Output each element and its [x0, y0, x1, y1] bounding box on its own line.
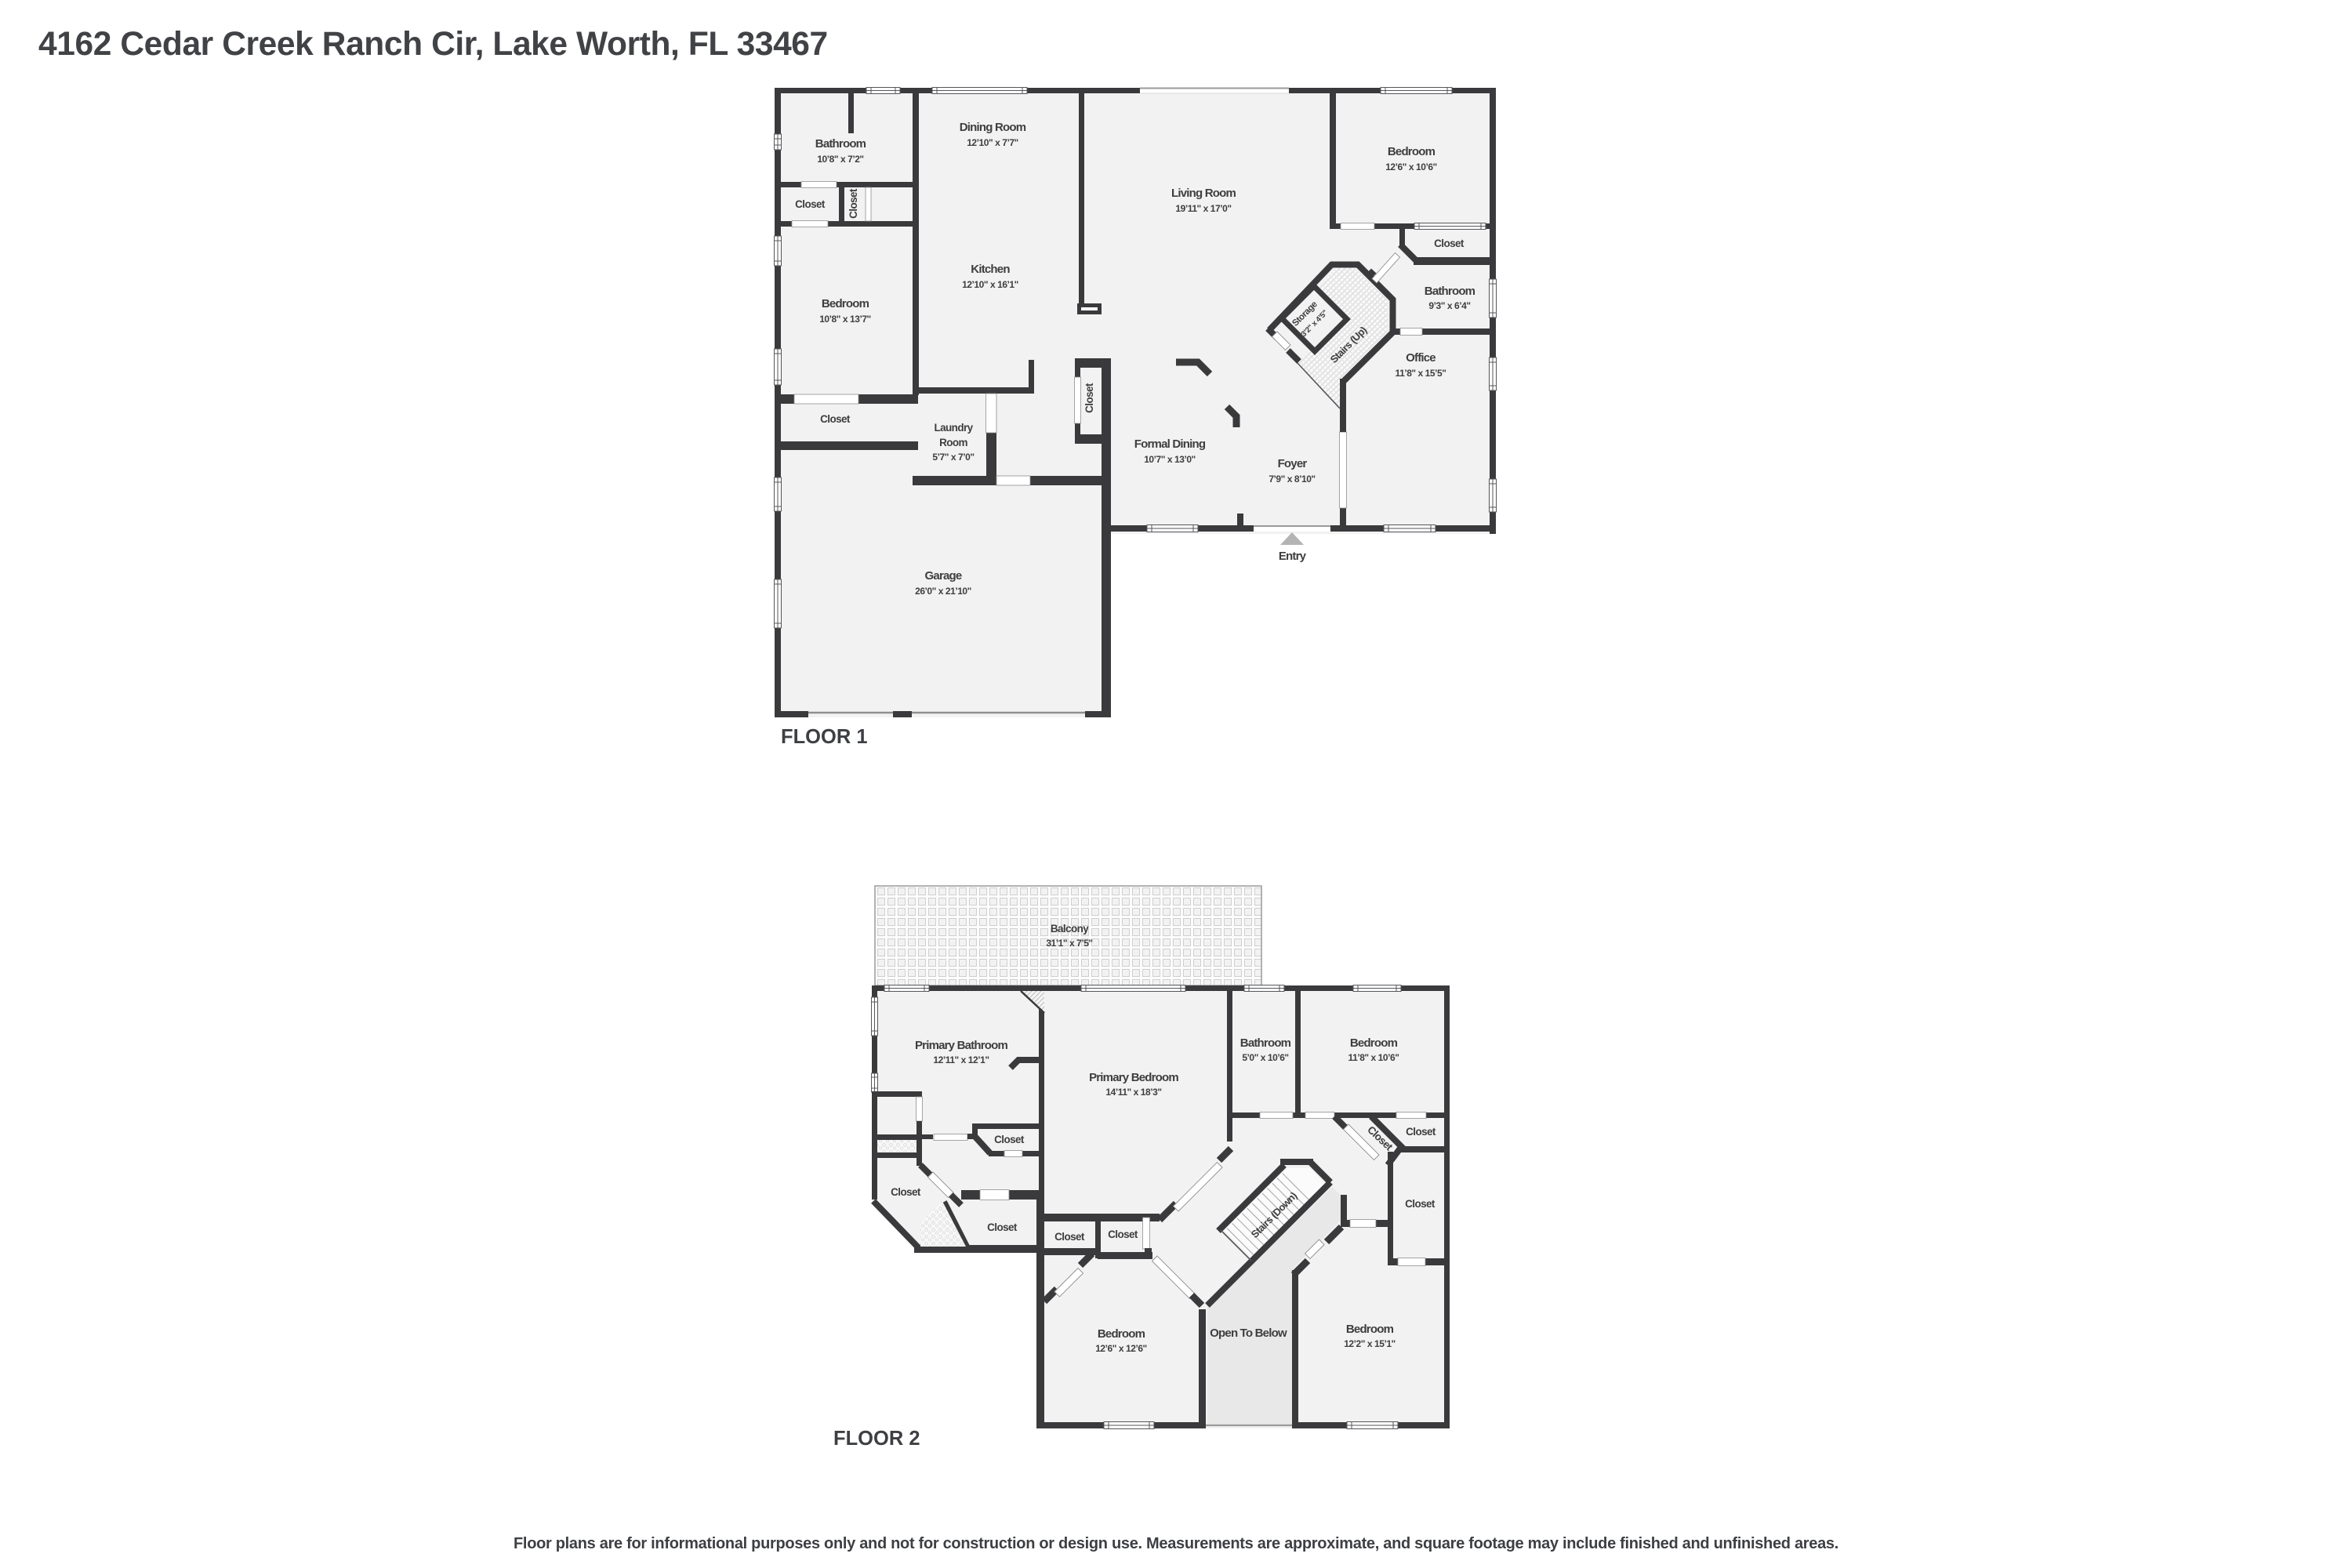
svg-text:12’10" x 16’1": 12’10" x 16’1": [962, 279, 1018, 290]
svg-text:10’8" x 7’2": 10’8" x 7’2": [817, 154, 863, 165]
svg-text:Balcony: Balcony: [1051, 923, 1089, 935]
svg-text:Living Room: Living Room: [1171, 187, 1236, 200]
svg-text:Closet: Closet: [848, 188, 859, 219]
svg-text:Dining Room: Dining Room: [960, 121, 1026, 134]
svg-text:Open To Below: Open To Below: [1210, 1327, 1287, 1340]
svg-text:Primary Bathroom: Primary Bathroom: [915, 1039, 1008, 1052]
svg-text:Bathroom: Bathroom: [1425, 285, 1475, 298]
svg-text:5’7" x 7’0": 5’7" x 7’0": [932, 452, 974, 463]
svg-text:11’8" x 15’5": 11’8" x 15’5": [1396, 368, 1446, 379]
svg-text:10’8" x 13’7": 10’8" x 13’7": [819, 314, 871, 325]
svg-text:Office: Office: [1406, 351, 1436, 365]
svg-text:Bedroom: Bedroom: [822, 297, 869, 310]
svg-text:Closet: Closet: [1108, 1229, 1138, 1240]
svg-text:9’3" x 6’4": 9’3" x 6’4": [1428, 300, 1470, 311]
svg-text:Closet: Closet: [1434, 238, 1465, 249]
svg-text:Garage: Garage: [925, 569, 962, 583]
svg-text:Closet: Closet: [1406, 1126, 1436, 1138]
svg-text:Entry: Entry: [1279, 550, 1307, 563]
svg-text:Laundry: Laundry: [934, 422, 973, 434]
svg-text:Closet: Closet: [987, 1221, 1018, 1233]
svg-text:Closet: Closet: [820, 413, 851, 425]
svg-text:Closet: Closet: [994, 1134, 1025, 1145]
svg-text:Bathroom: Bathroom: [1240, 1036, 1291, 1050]
svg-text:Closet: Closet: [1083, 383, 1095, 413]
svg-text:12’6" x 12’6": 12’6" x 12’6": [1095, 1343, 1147, 1354]
svg-text:Closet: Closet: [1054, 1231, 1085, 1243]
svg-text:19’11" x 17’0": 19’11" x 17’0": [1175, 203, 1231, 214]
svg-text:Bedroom: Bedroom: [1388, 145, 1436, 158]
svg-text:12’11" x 12’1": 12’11" x 12’1": [933, 1054, 989, 1065]
svg-text:14’11" x 18’3": 14’11" x 18’3": [1105, 1087, 1161, 1098]
svg-text:Closet: Closet: [891, 1186, 921, 1198]
svg-text:Floor plans are for informatio: Floor plans are for informational purpos…: [514, 1535, 1838, 1552]
svg-text:Kitchen: Kitchen: [971, 263, 1010, 276]
svg-text:4162 Cedar Creek Ranch Cir, La: 4162 Cedar Creek Ranch Cir, Lake Worth, …: [38, 26, 828, 63]
svg-text:FLOOR 1: FLOOR 1: [781, 726, 868, 748]
svg-text:Formal Dining: Formal Dining: [1134, 437, 1206, 451]
svg-text:Bathroom: Bathroom: [815, 137, 866, 151]
svg-text:Closet: Closet: [1405, 1198, 1436, 1210]
svg-text:Room: Room: [939, 437, 967, 448]
svg-text:12’6" x 10’6": 12’6" x 10’6": [1385, 162, 1437, 172]
svg-text:31’1" x 7’5": 31’1" x 7’5": [1046, 938, 1092, 949]
svg-text:Bedroom: Bedroom: [1098, 1327, 1145, 1341]
svg-text:26’0" x 21’10": 26’0" x 21’10": [915, 586, 971, 597]
svg-text:Bedroom: Bedroom: [1346, 1323, 1394, 1336]
svg-text:Bedroom: Bedroom: [1350, 1036, 1398, 1050]
svg-text:Closet: Closet: [795, 198, 826, 210]
svg-text:11’8" x 10’6": 11’8" x 10’6": [1348, 1052, 1399, 1063]
svg-text:12’10" x 7’7": 12’10" x 7’7": [967, 137, 1018, 148]
svg-text:10’7" x 13’0": 10’7" x 13’0": [1144, 454, 1196, 465]
svg-text:FLOOR 2: FLOOR 2: [833, 1428, 920, 1450]
svg-text:5’0" x 10’6": 5’0" x 10’6": [1242, 1052, 1288, 1063]
svg-text:Primary Bedroom: Primary Bedroom: [1089, 1071, 1178, 1084]
svg-text:12’2" x 15’1": 12’2" x 15’1": [1344, 1338, 1396, 1349]
svg-text:Foyer: Foyer: [1278, 457, 1308, 470]
svg-text:7’9" x 8’10": 7’9" x 8’10": [1269, 474, 1315, 485]
